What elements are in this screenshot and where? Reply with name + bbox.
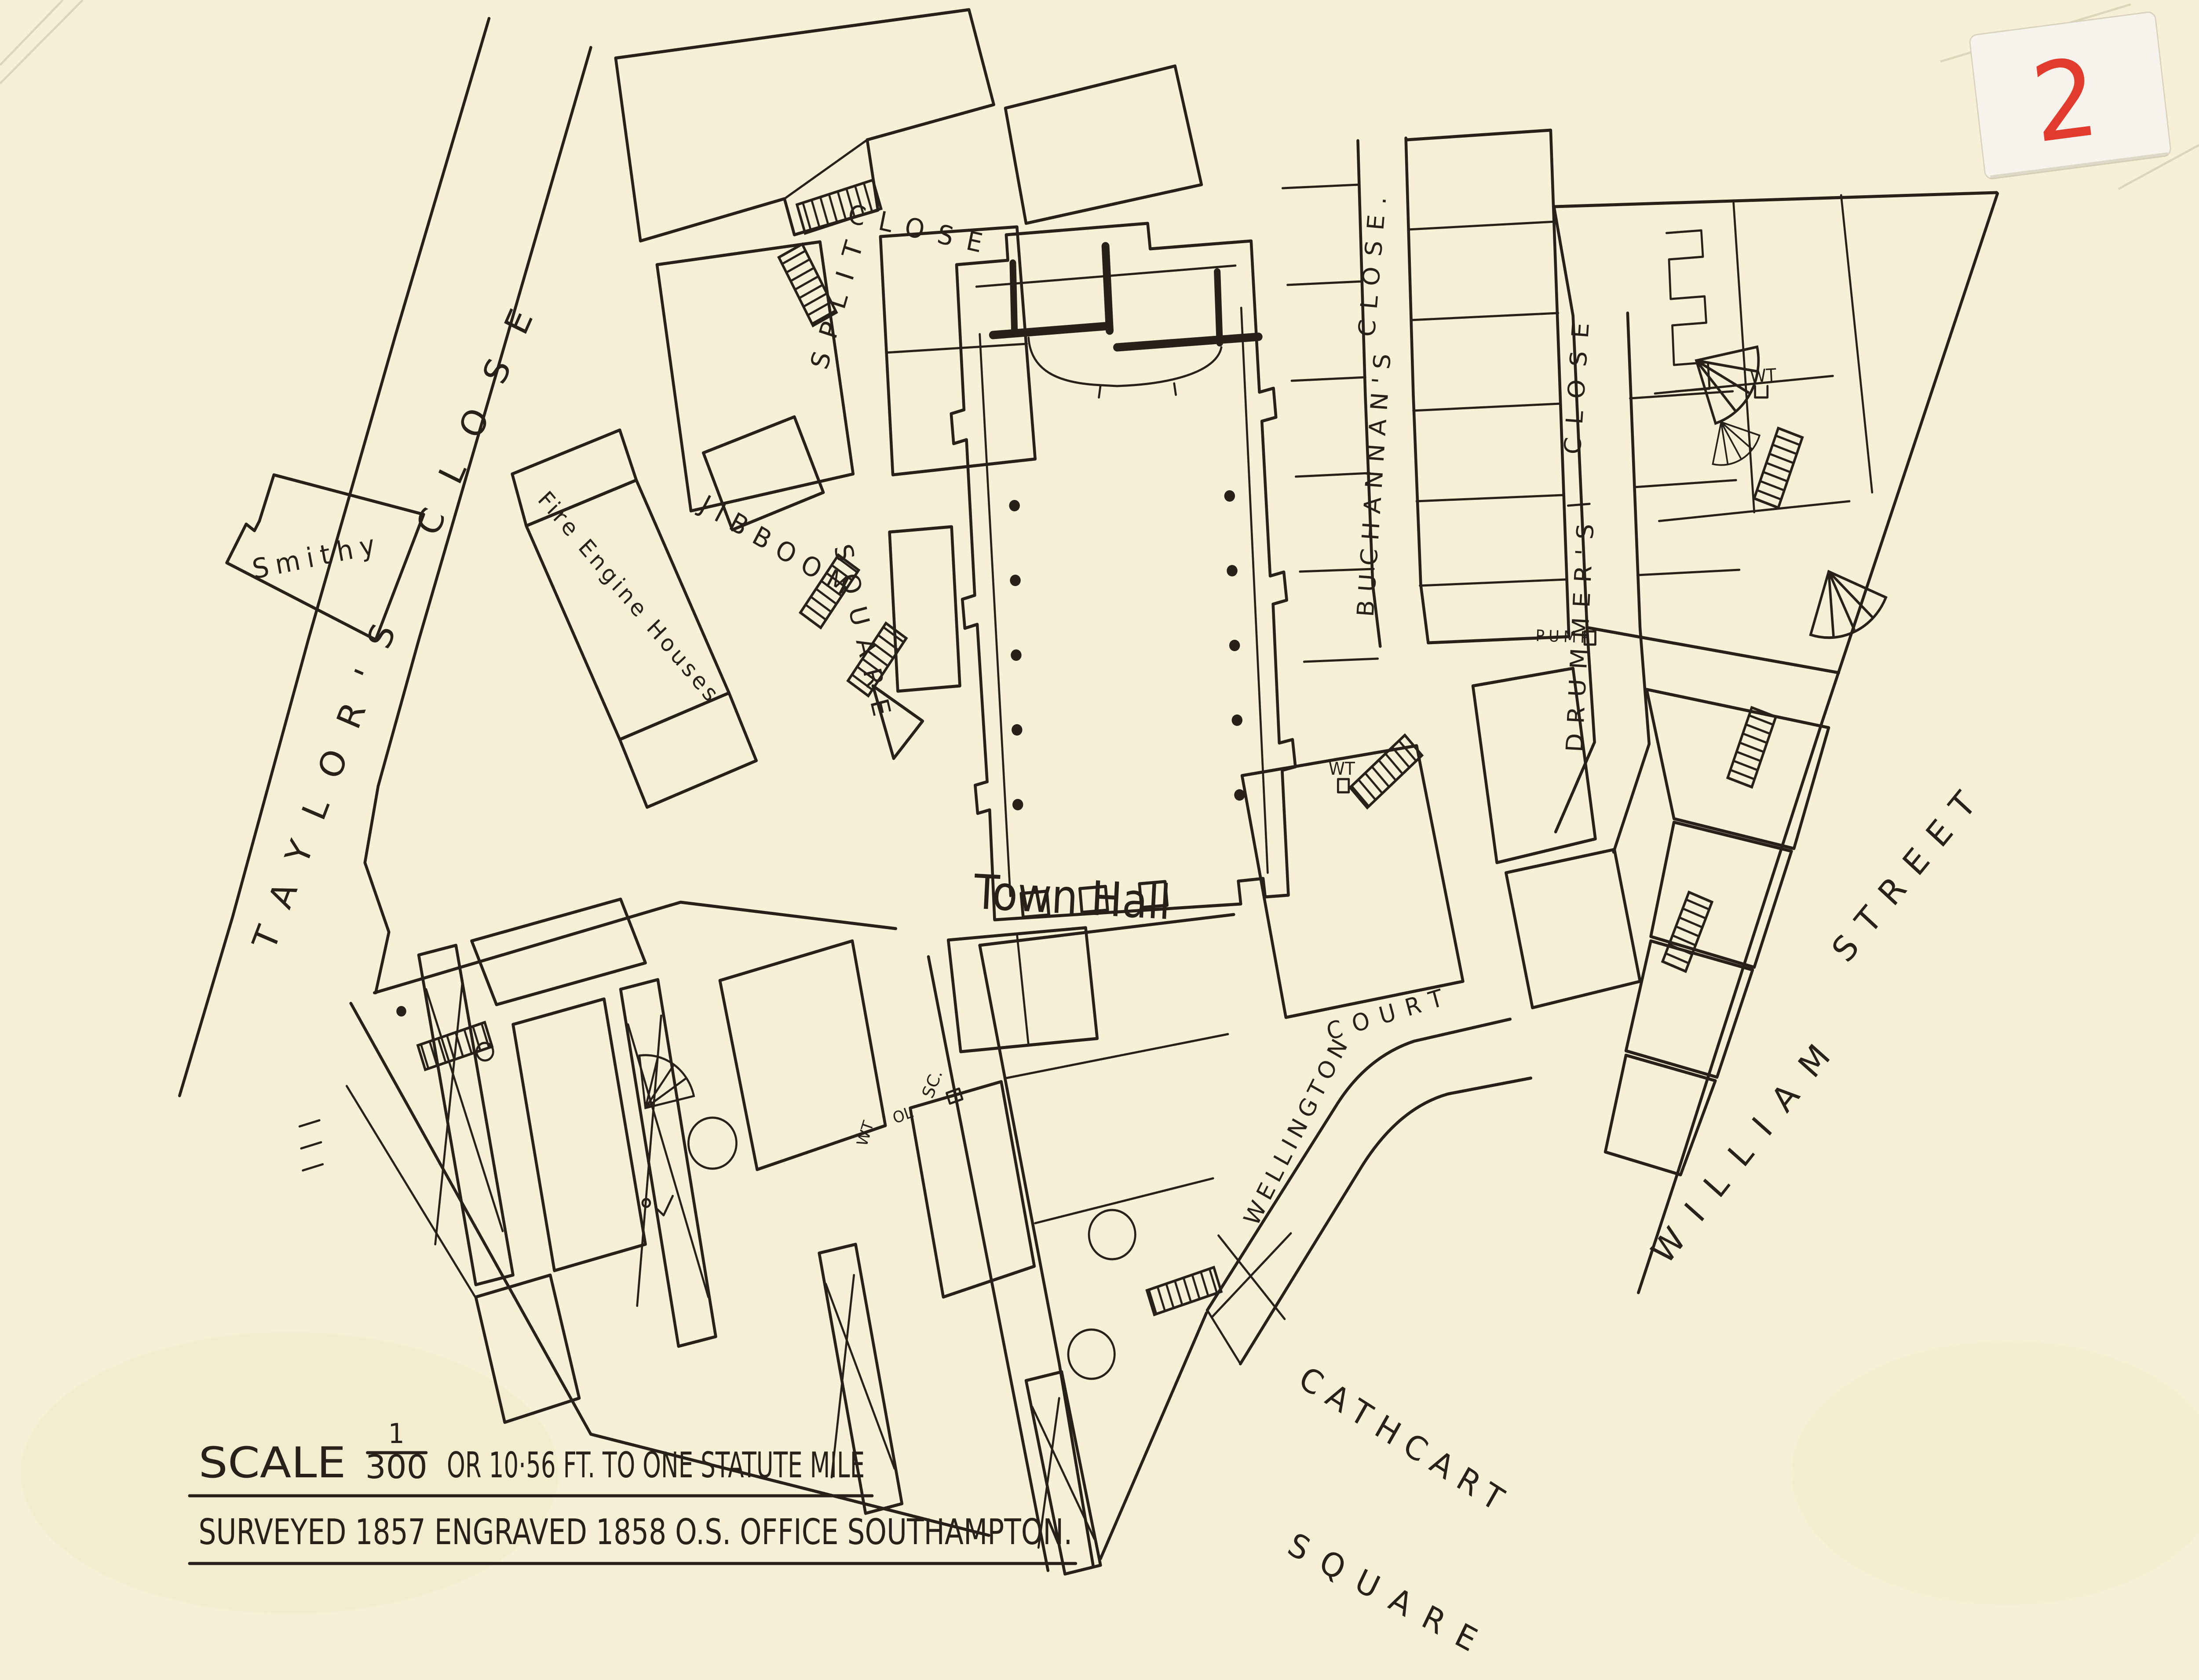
mark-label-wt-north: WT <box>1750 365 1777 387</box>
column-dot <box>1010 575 1020 586</box>
column-dot <box>1012 799 1023 810</box>
scale-fraction-denominator: 300 <box>365 1448 427 1486</box>
column-dot <box>1009 500 1019 511</box>
scale-line1-rest: OR 10·56 FT. TO ONE STATUTE MILE <box>447 1445 865 1486</box>
column-dot <box>1224 490 1235 502</box>
place-label-town-hall: Town Hall <box>972 864 1172 930</box>
scale-line2: SURVEYED 1857 ENGRAVED 1858 O.S. OFFICE … <box>199 1512 1073 1553</box>
map-sheet: TAYLOR'S CLOSE Smithy SPLIT CLOSE JIBBOO… <box>0 0 2199 1680</box>
column-dot <box>1011 649 1021 661</box>
sheet-number-sticker: 2 <box>1969 11 2171 180</box>
town-hall-central-wall <box>1106 246 1110 331</box>
post-dot <box>396 1006 406 1017</box>
mark-label-wt-court: WT <box>1329 759 1355 779</box>
column-dot <box>1012 724 1022 736</box>
column-dot <box>1234 789 1245 801</box>
column-dot <box>1229 640 1240 651</box>
column-dot <box>1232 714 1242 726</box>
column-dot <box>1227 565 1237 576</box>
scale-fraction-numerator: 1 <box>388 1418 405 1450</box>
scale-word: SCALE <box>199 1438 346 1487</box>
